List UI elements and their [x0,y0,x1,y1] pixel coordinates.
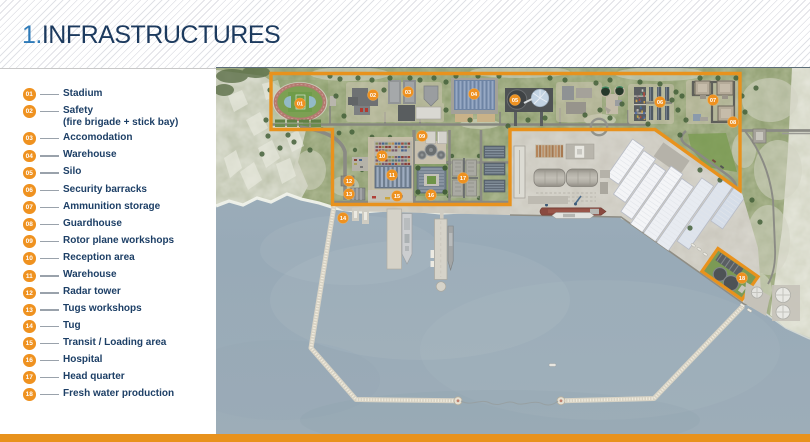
svg-text:15: 15 [394,194,400,200]
svg-text:04: 04 [471,92,478,98]
svg-text:09: 09 [419,134,425,140]
svg-text:14: 14 [340,216,347,222]
svg-text:12: 12 [346,179,352,185]
svg-text:16: 16 [428,193,434,199]
svg-text:07: 07 [710,98,716,104]
svg-text:01: 01 [297,102,303,108]
svg-text:13: 13 [346,192,352,198]
svg-text:10: 10 [379,154,385,160]
svg-text:11: 11 [389,173,395,179]
svg-text:17: 17 [460,176,466,182]
svg-text:02: 02 [370,93,376,99]
svg-text:05: 05 [512,98,518,104]
svg-text:08: 08 [730,120,736,126]
svg-text:18: 18 [739,276,745,282]
svg-text:03: 03 [405,90,411,96]
svg-text:06: 06 [657,100,663,106]
